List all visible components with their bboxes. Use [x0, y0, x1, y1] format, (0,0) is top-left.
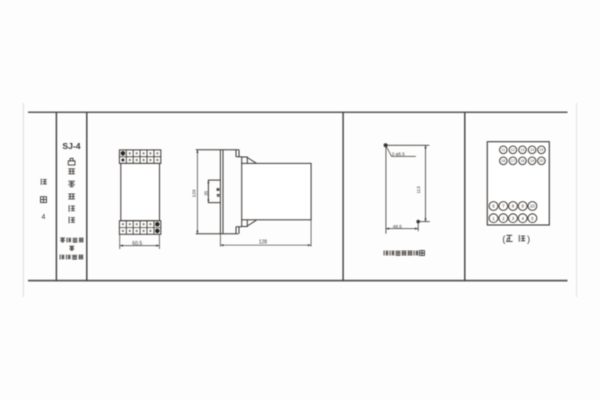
svg-text:14: 14: [530, 148, 534, 152]
svg-text:13: 13: [521, 148, 525, 152]
svg-text:4: 4: [42, 214, 46, 221]
svg-text:35: 35: [204, 190, 209, 196]
svg-text:16: 16: [501, 159, 505, 163]
svg-text:SJ-4: SJ-4: [62, 141, 80, 151]
svg-text:128: 128: [259, 240, 268, 246]
svg-text:113: 113: [416, 186, 421, 194]
svg-text:11: 11: [501, 148, 505, 152]
svg-text:): ): [527, 234, 530, 244]
svg-text:19: 19: [530, 159, 534, 163]
svg-text:(: (: [502, 234, 505, 244]
svg-text:2-φ5.5: 2-φ5.5: [392, 152, 405, 157]
svg-text:60.5: 60.5: [132, 241, 142, 247]
svg-text:17: 17: [511, 159, 515, 163]
svg-text:129: 129: [191, 189, 196, 197]
svg-text:15: 15: [539, 148, 543, 152]
svg-text:10: 10: [530, 204, 535, 209]
svg-text:18: 18: [521, 159, 525, 163]
svg-text:12: 12: [511, 148, 515, 152]
svg-text:20: 20: [539, 159, 543, 163]
svg-text:48.5: 48.5: [393, 224, 403, 229]
